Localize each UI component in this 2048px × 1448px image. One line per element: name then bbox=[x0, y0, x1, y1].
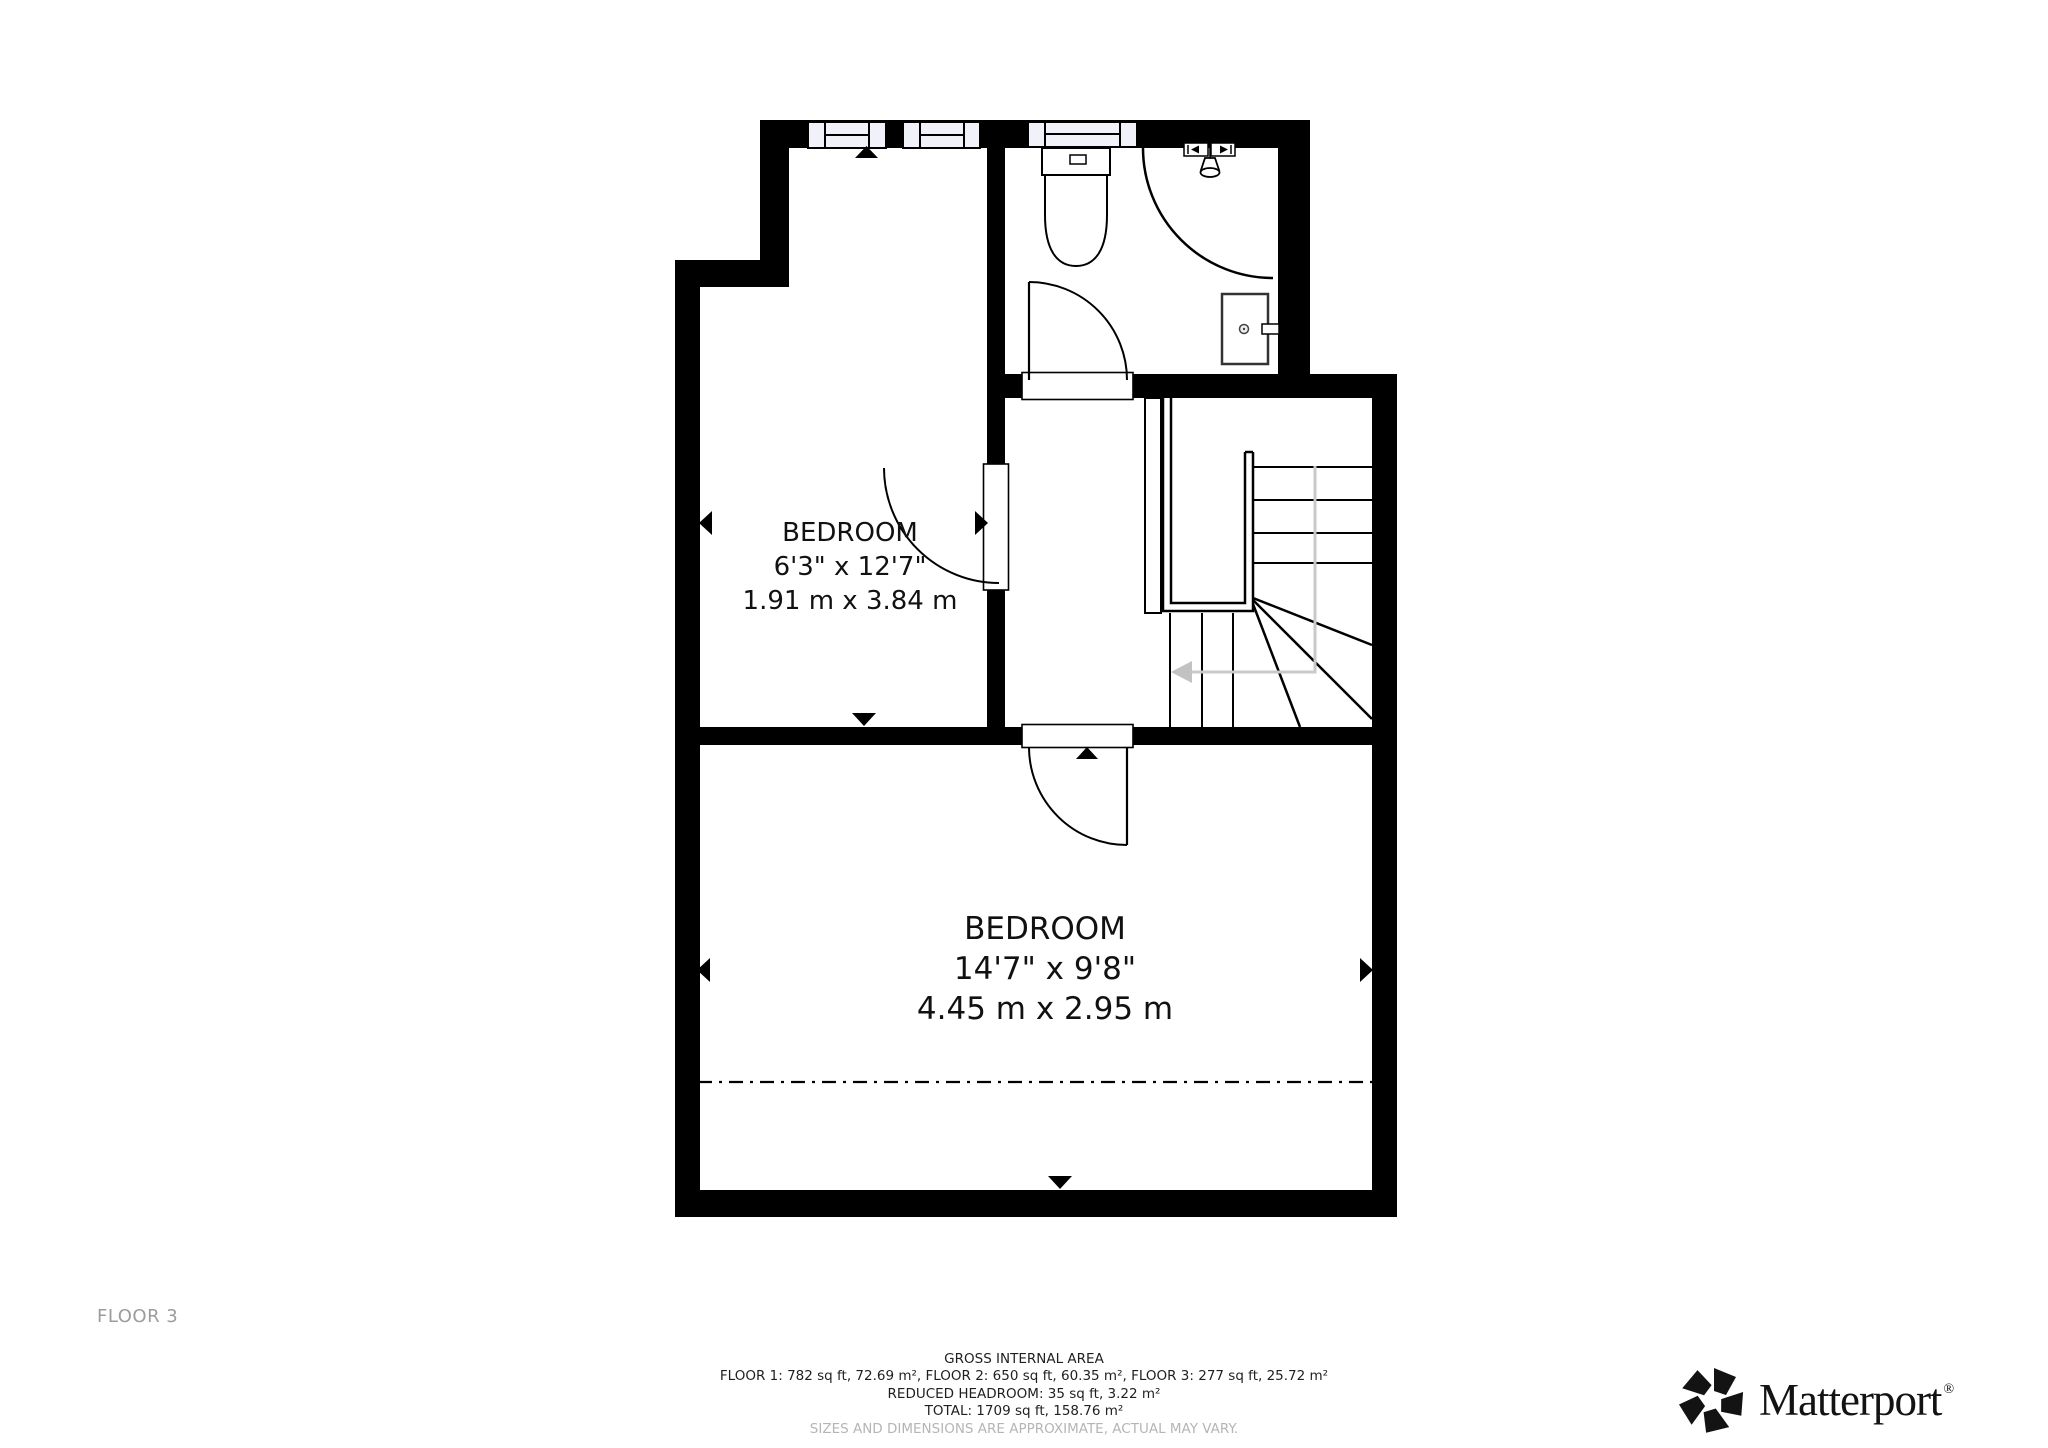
shower-icon bbox=[1143, 143, 1273, 278]
stairwell-wall bbox=[1145, 398, 1161, 613]
stair-winders bbox=[1253, 598, 1372, 727]
arrowhead-left-icon bbox=[1171, 661, 1192, 683]
room-dims-imperial: 6'3" x 12'7" bbox=[743, 550, 958, 584]
wall-bathroom-right bbox=[1278, 120, 1310, 398]
area-summary-disclaimer: SIZES AND DIMENSIONS ARE APPROXIMATE, AC… bbox=[720, 1421, 1328, 1438]
stair-railing bbox=[1163, 398, 1253, 611]
room-dims-metric: 4.45 m x 2.95 m bbox=[917, 989, 1173, 1029]
matterport-brand: Matterport ® bbox=[1678, 1366, 1954, 1434]
window-icon bbox=[1028, 122, 1137, 147]
area-summary-title: GROSS INTERNAL AREA bbox=[720, 1351, 1328, 1368]
area-summary-floors: FLOOR 1: 782 sq ft, 72.69 m², FLOOR 2: 6… bbox=[720, 1368, 1328, 1385]
sink-icon bbox=[1222, 294, 1279, 364]
marker-right-icon bbox=[1360, 958, 1373, 982]
windows bbox=[808, 122, 1137, 148]
large-bedroom-door bbox=[1022, 725, 1133, 846]
area-summary: GROSS INTERNAL AREA FLOOR 1: 782 sq ft, … bbox=[720, 1351, 1328, 1438]
wall-divider bbox=[987, 148, 1005, 745]
room-name: BEDROOM bbox=[743, 516, 958, 550]
room-dims-imperial: 14'7" x 9'8" bbox=[917, 949, 1173, 989]
stair-treads-upper bbox=[1253, 467, 1372, 563]
wall-right bbox=[1372, 374, 1397, 1217]
staircase bbox=[1145, 398, 1372, 727]
wall-bottom bbox=[675, 1190, 1397, 1217]
room-label-bedroom-small: BEDROOM 6'3" x 12'7" 1.91 m x 3.84 m bbox=[743, 516, 958, 618]
room-dims-metric: 1.91 m x 3.84 m bbox=[743, 584, 958, 618]
marker-left-icon bbox=[699, 511, 712, 535]
area-summary-total: TOTAL: 1709 sq ft, 158.76 m² bbox=[720, 1403, 1328, 1420]
room-label-bedroom-large: BEDROOM 14'7" x 9'8" 4.45 m x 2.95 m bbox=[917, 909, 1173, 1029]
toilet-icon bbox=[1042, 148, 1110, 266]
room-name: BEDROOM bbox=[917, 909, 1173, 949]
marker-up-icon bbox=[1076, 747, 1098, 759]
area-summary-reduced-headroom: REDUCED HEADROOM: 35 sq ft, 3.22 m² bbox=[720, 1386, 1328, 1403]
walls bbox=[675, 120, 1397, 1217]
window-icon bbox=[808, 122, 886, 148]
matterport-logo-icon bbox=[1678, 1366, 1746, 1434]
direction-markers bbox=[697, 146, 1373, 1189]
registered-trademark-icon: ® bbox=[1943, 1382, 1954, 1398]
window-icon bbox=[903, 122, 980, 148]
matterport-wordmark: Matterport bbox=[1759, 1378, 1941, 1423]
marker-down-icon bbox=[852, 713, 876, 726]
marker-down-icon bbox=[1048, 1176, 1072, 1189]
floorplan-page: BEDROOM 6'3" x 12'7" 1.91 m x 3.84 m BED… bbox=[0, 0, 2048, 1448]
bathroom-door bbox=[1022, 282, 1133, 400]
floor-label: FLOOR 3 bbox=[97, 1306, 178, 1327]
stair-direction-arrow bbox=[1171, 466, 1315, 683]
floorplan-drawing bbox=[0, 0, 2048, 1448]
